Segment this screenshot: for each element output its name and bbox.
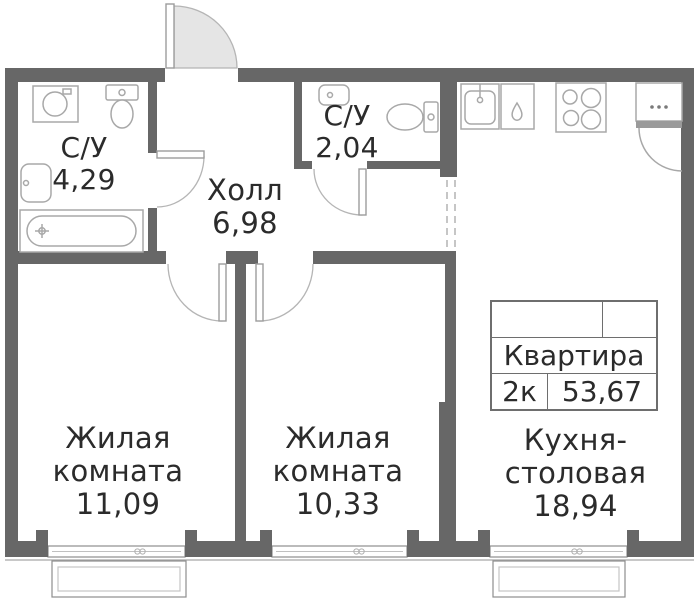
room-label-bathroom-2: С/У 2,04 (277, 100, 417, 164)
room-name: С/У (14, 132, 154, 164)
fridge-icon (636, 83, 682, 171)
living1-door-icon (168, 264, 226, 321)
kitchen-opening-dashes (447, 180, 455, 251)
room-label-kitchen: Кухня- столовая 18,94 (488, 424, 663, 523)
bathroom2-door-icon (314, 169, 366, 215)
floor-plan: С/У 4,29 С/У 2,04 Холл 6,98 Жилая комнат… (0, 0, 700, 600)
apartment-rooms-count: 2к (492, 374, 548, 409)
room-area: 2,04 (277, 132, 417, 164)
bathtub-icon (20, 210, 143, 252)
washing-machine-icon (33, 86, 78, 122)
table-row: 2к 53,67 (492, 373, 656, 409)
entrance-door-icon (166, 4, 237, 68)
table-row: Квартира (492, 337, 656, 373)
room-name: Жилая (253, 422, 423, 455)
room-label-hall: Холл 6,98 (175, 174, 315, 240)
stove-icon (556, 83, 606, 132)
room-area: 11,09 (33, 488, 203, 521)
room-name: Кухня- (488, 424, 663, 457)
room-area: 4,29 (14, 164, 154, 196)
kitchen-sink-icon (461, 84, 499, 129)
table-row (492, 302, 656, 337)
room-name: комната (33, 455, 203, 488)
balcony-icon (52, 561, 186, 597)
room-name: комната (253, 455, 423, 488)
room-label-living-1: Жилая комната 11,09 (33, 422, 203, 521)
balcony-icon (493, 561, 625, 597)
dishwasher-icon (501, 84, 534, 129)
room-name: Холл (175, 174, 315, 207)
toilet-icon (106, 85, 138, 128)
apartment-total-area: 53,67 (548, 374, 656, 409)
window-icon (490, 546, 627, 557)
room-area: 10,33 (253, 488, 423, 521)
window-icon (272, 546, 407, 557)
table-empty-cell-left (492, 302, 603, 337)
room-name: С/У (277, 100, 417, 132)
room-name: Жилая (33, 422, 203, 455)
room-area: 6,98 (175, 207, 315, 240)
window-icon (48, 546, 185, 557)
room-name: столовая (488, 457, 663, 490)
room-label-living-2: Жилая комната 10,33 (253, 422, 423, 521)
kitchen-cabinet-door-icon (639, 128, 682, 171)
apartment-info-table: Квартира 2к 53,67 (490, 300, 658, 411)
living2-door-icon (256, 264, 313, 321)
table-empty-cell-right (603, 302, 656, 337)
room-area: 18,94 (488, 490, 663, 523)
room-label-bathroom-1: С/У 4,29 (14, 132, 154, 196)
apartment-title: Квартира (492, 338, 656, 373)
